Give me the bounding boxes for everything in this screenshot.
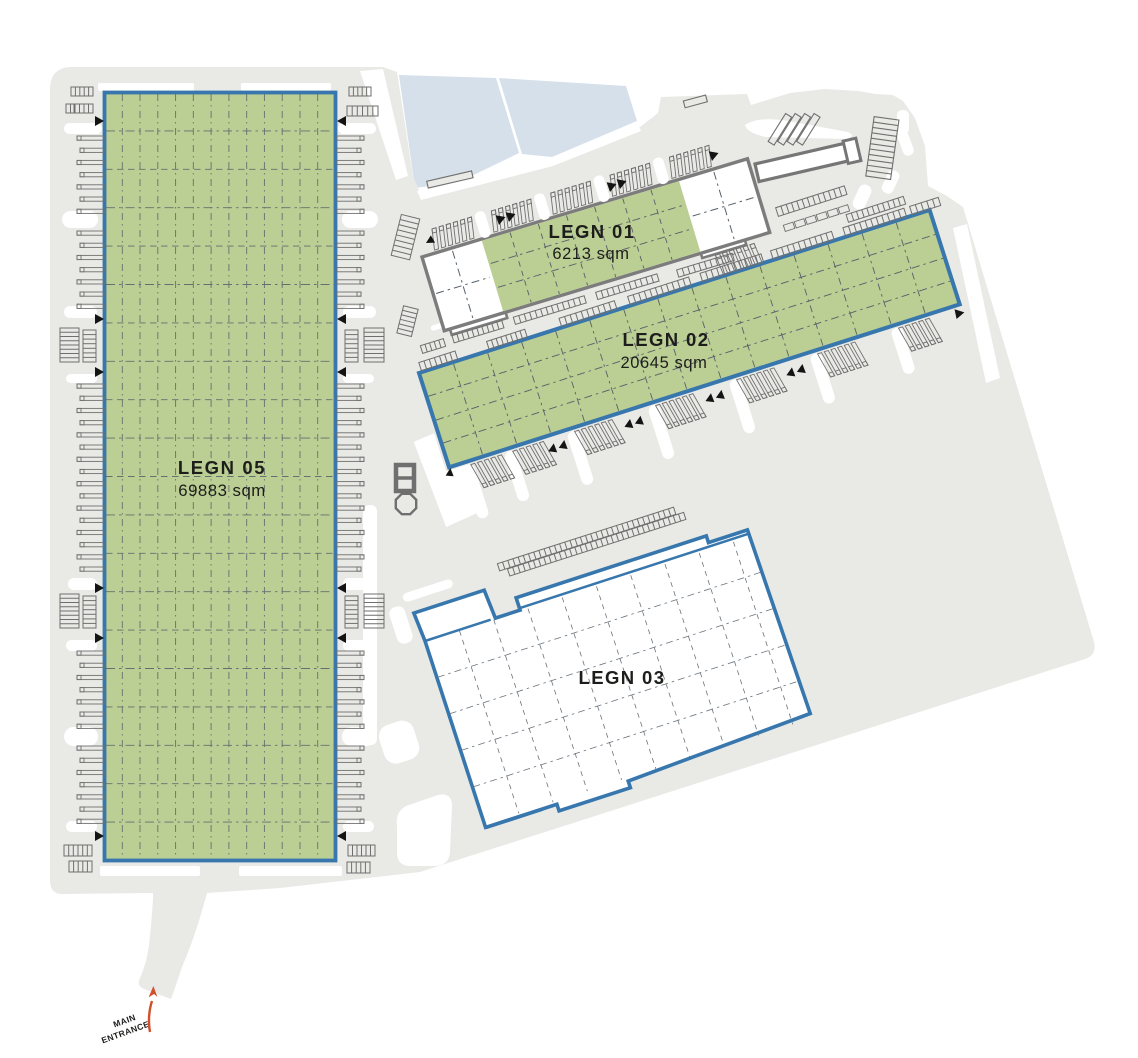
svg-text:6213 sqm: 6213 sqm [552,245,629,263]
svg-text:LEGN 05: LEGN 05 [178,457,266,478]
svg-text:LEGN 03: LEGN 03 [579,667,666,688]
svg-text:LEGN 02: LEGN 02 [623,329,710,350]
svg-text:20645 sqm: 20645 sqm [620,354,707,372]
svg-text:LEGN 01: LEGN 01 [549,221,636,242]
svg-text:69883 sqm: 69883 sqm [178,481,266,500]
